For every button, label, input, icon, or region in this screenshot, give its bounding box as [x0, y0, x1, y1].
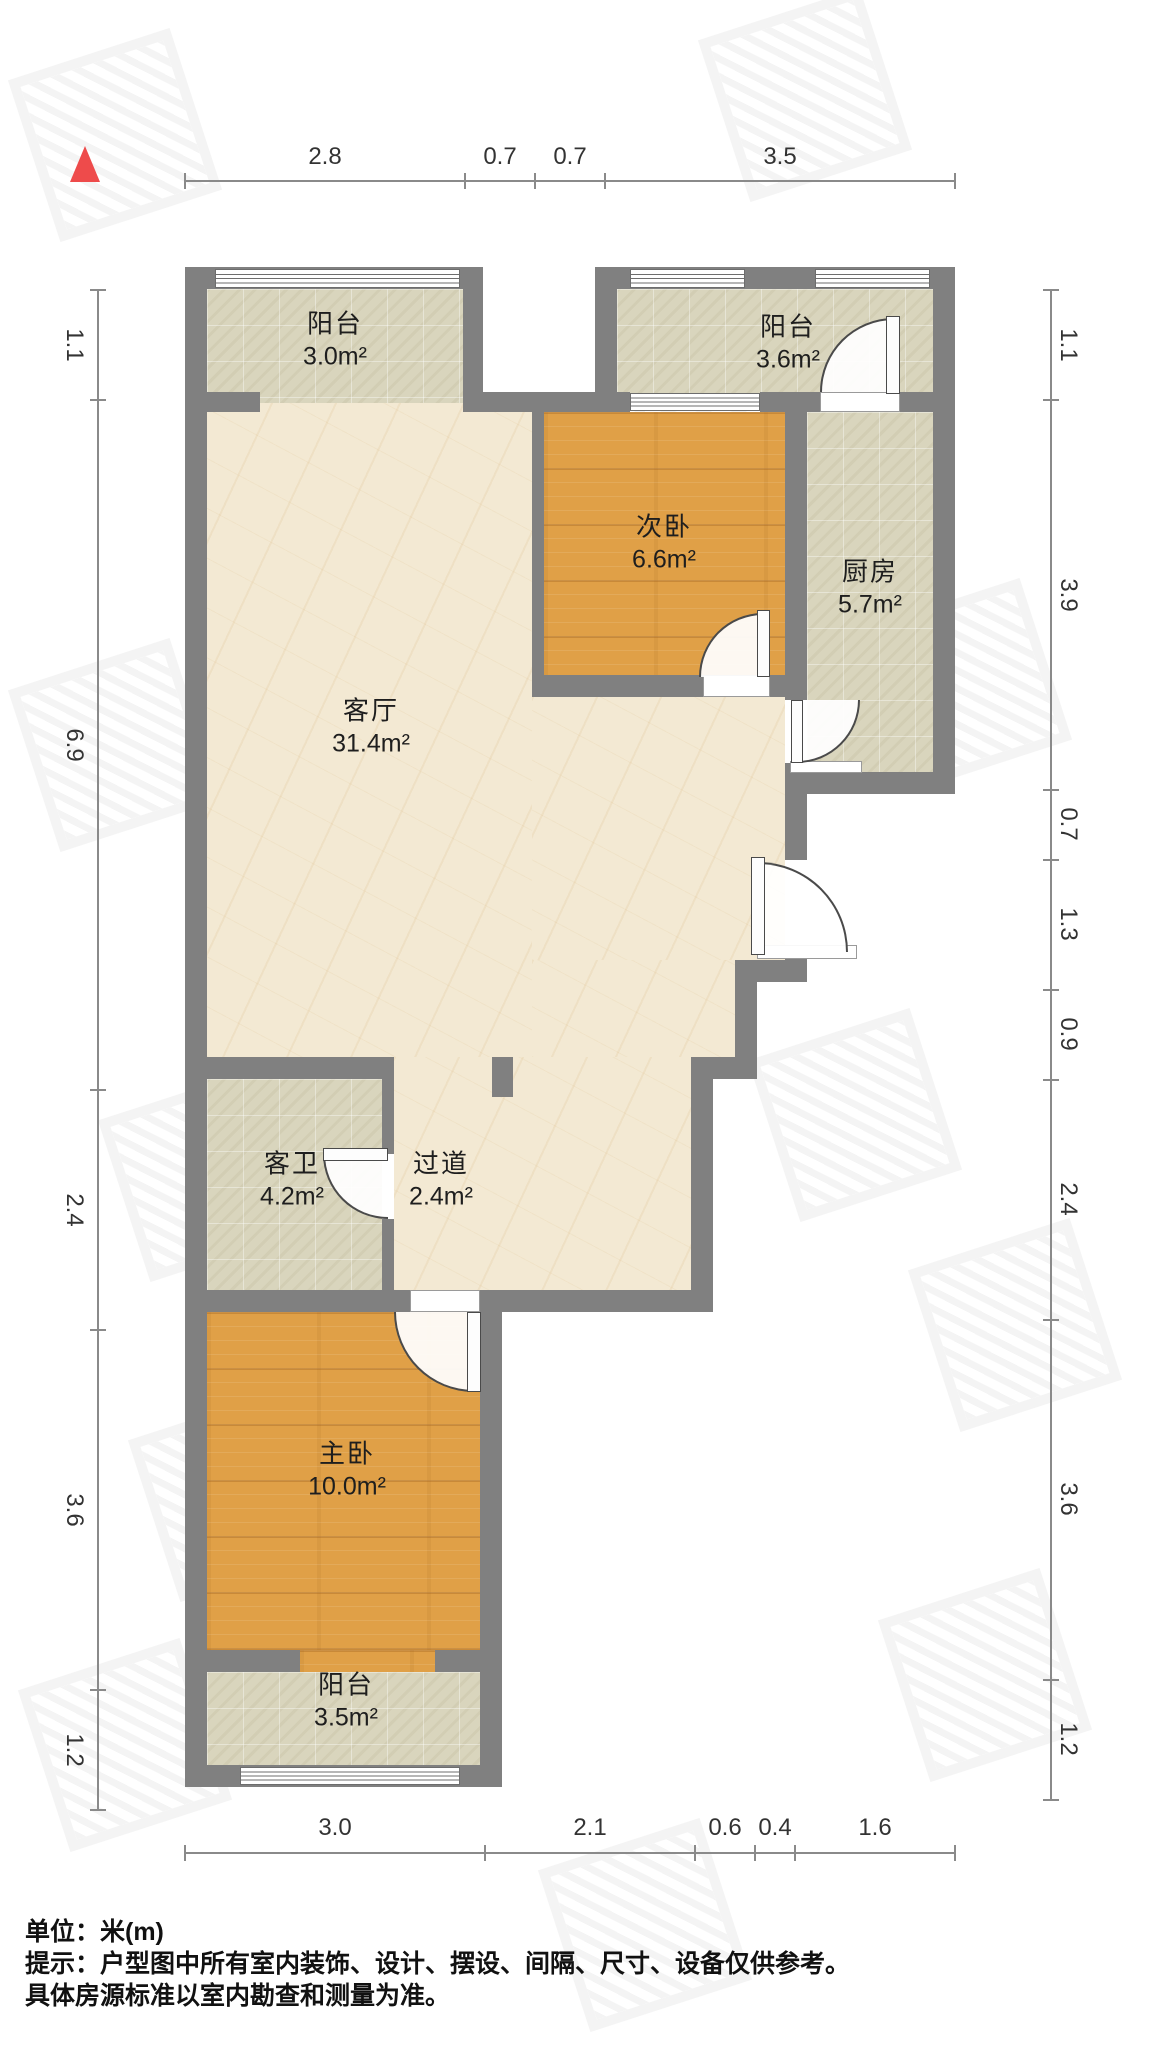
- wall-master-top: [207, 1290, 410, 1312]
- window-balcony-bottom: [240, 1767, 460, 1785]
- dim-label: 0.9: [1054, 1017, 1082, 1050]
- wall-exterior-left: [185, 267, 207, 1787]
- window-bedroom2-balcony: [630, 393, 760, 411]
- dim-tick: [754, 1845, 756, 1861]
- room-label-balcony-bottom: 阳台3.5m²: [314, 1667, 378, 1734]
- door-leaf-master: [467, 1312, 481, 1392]
- dim-label: 3.6: [1054, 1482, 1082, 1515]
- tip-line-1: 提示：户型图中所有室内装饰、设计、摆设、间隔、尺寸、设备仅供参考。: [25, 1944, 850, 1980]
- wall-kitchen-bottom: [785, 772, 955, 794]
- room-label-balcony-top-right: 阳台3.6m²: [756, 309, 820, 376]
- wall-bedroom2-bottom: [532, 675, 703, 697]
- room-label-livingroom: 客厅31.4m²: [332, 693, 410, 760]
- door-leaf-bedroom2: [757, 610, 770, 677]
- dim-label: 3.0: [318, 1814, 351, 1842]
- dim-line-top: [185, 180, 955, 182]
- watermark: [8, 28, 222, 242]
- door-leaf-bathroom: [323, 1148, 388, 1161]
- dim-tick: [954, 1845, 956, 1861]
- wall-stub: [207, 1650, 300, 1672]
- dim-tick: [90, 289, 106, 291]
- door-sill: [820, 392, 900, 412]
- wall: [760, 392, 820, 412]
- dim-tick: [1043, 399, 1059, 401]
- window-balcony-top-right-2: [815, 269, 930, 288]
- north-arrow-icon: [70, 146, 100, 182]
- dim-tick: [1043, 1319, 1059, 1321]
- door-sill: [703, 675, 770, 697]
- dim-tick: [1043, 1799, 1059, 1801]
- dim-label: 6.9: [60, 728, 88, 761]
- room-label-bedroom-second: 次卧6.6m²: [632, 509, 696, 576]
- dim-line-bottom: [185, 1852, 955, 1854]
- dim-label: 2.8: [308, 143, 341, 171]
- watermark: [538, 1818, 752, 2032]
- dim-tick: [1043, 859, 1059, 861]
- watermark: [908, 1218, 1122, 1432]
- dim-tick: [694, 1845, 696, 1861]
- dim-line-left: [97, 290, 99, 1810]
- dim-tick: [464, 173, 466, 189]
- dim-tick: [954, 173, 956, 189]
- wall: [595, 267, 617, 412]
- dim-label: 1.3: [1054, 907, 1082, 940]
- dim-tick: [484, 1845, 486, 1861]
- dim-tick: [90, 1089, 106, 1091]
- watermark: [748, 1008, 962, 1222]
- dim-label: 0.7: [553, 143, 586, 171]
- room-label-kitchen: 厨房5.7m²: [838, 554, 902, 621]
- dim-label: 0.4: [758, 1814, 791, 1842]
- room-label-balcony-top-left: 阳台3.0m²: [303, 306, 367, 373]
- dim-tick: [1043, 1679, 1059, 1681]
- dim-tick: [1043, 289, 1059, 291]
- dim-tick: [184, 1845, 186, 1861]
- dim-label: 0.6: [708, 1814, 741, 1842]
- dim-label: 0.7: [1054, 807, 1082, 840]
- wall-kitchen-left: [785, 412, 807, 700]
- floor-livingroom: [532, 697, 785, 960]
- watermark: [698, 0, 912, 202]
- dim-tick: [794, 1845, 796, 1861]
- door-arc-entry: [758, 862, 848, 952]
- dim-tick: [534, 173, 536, 189]
- dim-tick: [1043, 989, 1059, 991]
- room-label-bedroom-master: 主卧10.0m²: [308, 1436, 386, 1503]
- dim-label: 2.4: [60, 1193, 88, 1226]
- dim-label: 3.5: [763, 143, 796, 171]
- room-label-hallway: 过道2.4m²: [409, 1146, 473, 1213]
- dim-tick: [90, 399, 106, 401]
- dim-tick: [604, 173, 606, 189]
- wall-bedroom2-left: [532, 412, 544, 697]
- wall-hallway-right: [691, 1057, 713, 1312]
- floor-livingroom: [532, 960, 735, 1057]
- wall-stub: [207, 392, 260, 412]
- wall-bedroom2-bottom: [770, 675, 807, 697]
- dim-tick: [184, 173, 186, 189]
- dim-tick: [90, 1809, 106, 1811]
- door-leaf-balcony: [886, 316, 900, 394]
- window-balcony-top-left: [215, 269, 460, 288]
- dim-tick: [1043, 1079, 1059, 1081]
- door-sill: [410, 1290, 480, 1312]
- unit-note: 单位：米(m): [25, 1912, 164, 1948]
- dim-label: 1.2: [60, 1733, 88, 1766]
- wall-master-right: [480, 1290, 502, 1672]
- wall: [483, 392, 630, 412]
- dim-label: 3.6: [60, 1493, 88, 1526]
- room-label-bathroom: 客卫4.2m²: [260, 1146, 324, 1213]
- wall-balcony-right: [480, 1672, 502, 1787]
- dim-label: 2.4: [1054, 1182, 1082, 1215]
- wall-pillar: [492, 1057, 513, 1097]
- wall-exterior-right: [933, 267, 955, 794]
- wall: [900, 392, 933, 412]
- dim-label: 1.6: [858, 1814, 891, 1842]
- dim-label: 0.7: [483, 143, 516, 171]
- wall-bathroom-right: [382, 1079, 394, 1154]
- dim-label: 2.1: [573, 1814, 606, 1842]
- dim-tick: [1043, 789, 1059, 791]
- dim-label: 1.2: [1054, 1722, 1082, 1755]
- tip-line-2: 具体房源标准以室内勘查和测量为准。: [25, 1976, 450, 2012]
- wall-bathroom-top: [207, 1057, 394, 1079]
- floorplan-page: { "plan": { "type": "apartment-floorplan…: [0, 0, 1149, 2048]
- dim-tick: [90, 1689, 106, 1691]
- door-leaf-entry: [751, 857, 765, 955]
- wall: [463, 267, 483, 412]
- window-balcony-top-right-1: [630, 269, 745, 288]
- dim-line-right: [1050, 290, 1052, 1800]
- wall-hallway-bottom: [480, 1290, 713, 1312]
- dim-tick: [90, 1329, 106, 1331]
- dim-label: 1.1: [1054, 328, 1082, 361]
- dim-label: 1.1: [60, 328, 88, 361]
- door-leaf-kitchen: [791, 700, 803, 763]
- dim-label: 3.9: [1054, 578, 1082, 611]
- wall-stub: [435, 1650, 502, 1672]
